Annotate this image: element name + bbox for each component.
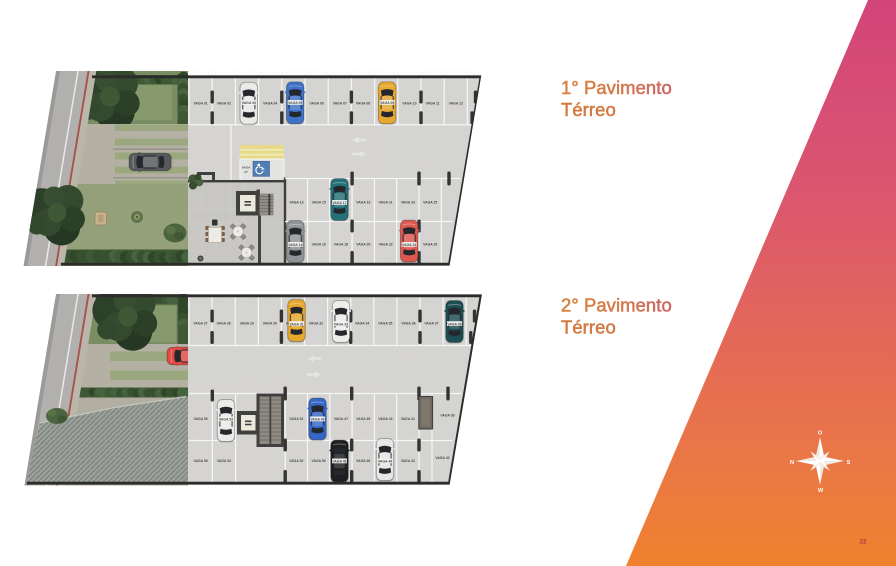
svg-text:N: N [790,460,794,466]
svg-text:Térreo: Térreo [561,99,616,120]
svg-text:S: S [847,460,851,466]
svg-text:22: 22 [859,539,867,546]
svg-text:W: W [818,488,824,494]
svg-text:Térreo: Térreo [561,316,616,337]
svg-text:2° Pavimento: 2° Pavimento [561,294,672,315]
svg-text:O: O [818,431,823,437]
svg-text:1° Pavimento: 1° Pavimento [561,77,672,98]
